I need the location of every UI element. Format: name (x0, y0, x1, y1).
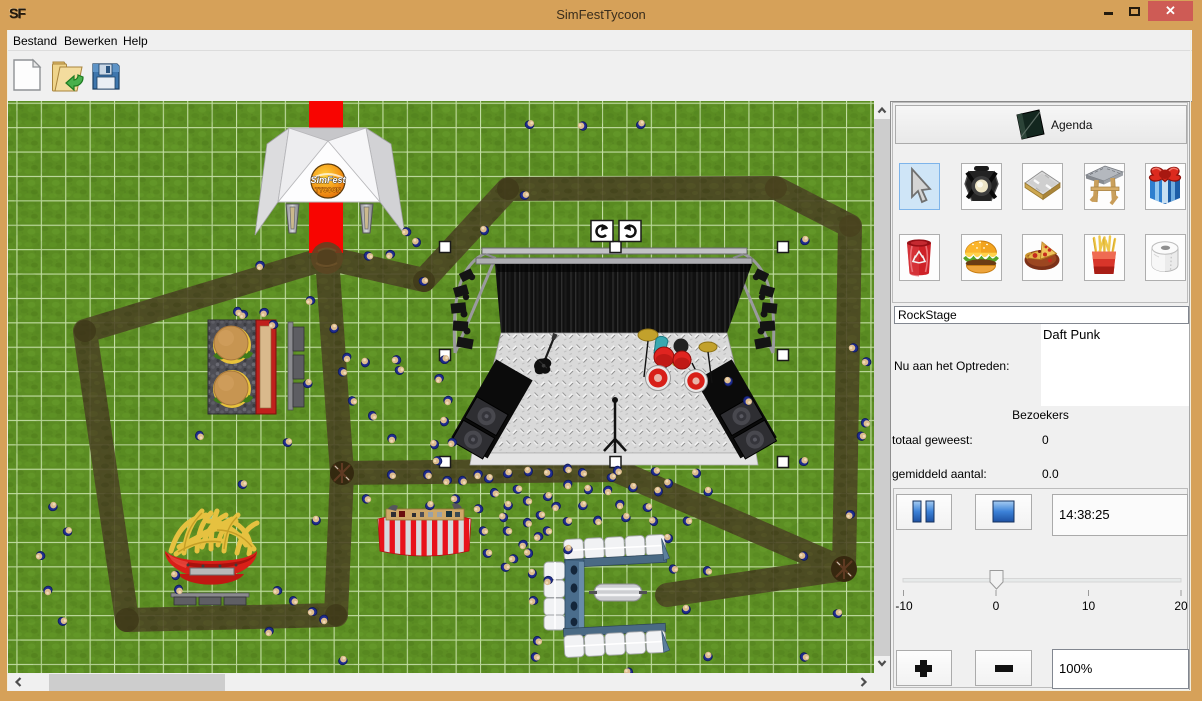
svg-text:20: 20 (1174, 599, 1188, 613)
svg-text:-10: -10 (895, 599, 913, 613)
svg-text:10: 10 (1082, 599, 1096, 613)
svg-text:SimFest: SimFest (310, 175, 346, 185)
svg-text:TYCOON: TYCOON (315, 188, 341, 194)
svg-text:0: 0 (993, 599, 1000, 613)
